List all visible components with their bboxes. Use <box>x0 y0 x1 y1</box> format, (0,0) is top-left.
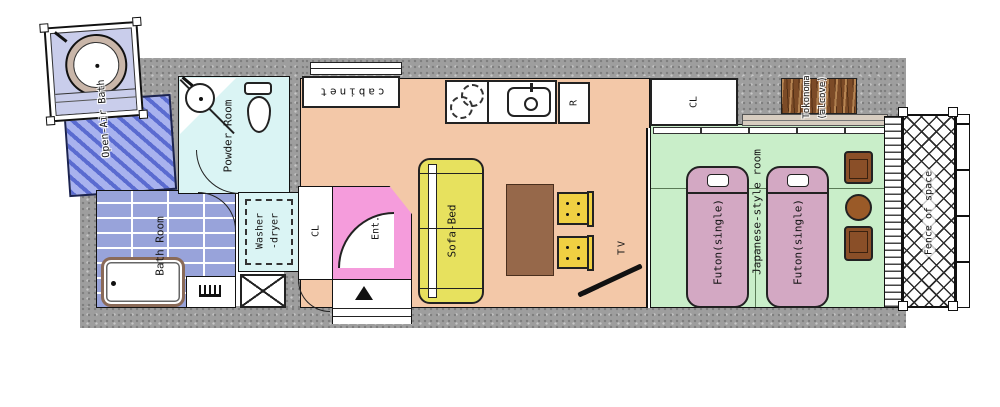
chair <box>557 192 589 225</box>
entrance-label: Ent. <box>371 216 382 240</box>
tokonoma-label-line1: Tokonoma <box>802 75 812 118</box>
frame-post <box>46 116 56 126</box>
sliding-track <box>653 127 885 134</box>
alcove-step <box>742 114 888 126</box>
chair-backrest <box>587 191 594 227</box>
pillow-icon <box>787 174 809 187</box>
sink-drain-icon <box>524 97 538 111</box>
fence-post <box>948 301 958 311</box>
round-table <box>845 194 872 221</box>
wall-bottom <box>80 306 906 328</box>
bathtub <box>101 257 185 307</box>
veranda-label: Fence of space <box>923 169 936 257</box>
window-line <box>311 68 401 69</box>
entrance-triangle-icon <box>355 286 373 300</box>
sofa-bed-label: Sofa-Bed <box>446 205 459 258</box>
bath-room-label: Bath Room <box>154 216 167 276</box>
futon-label-2: Futon(single) <box>792 199 805 285</box>
cabinet-label: cabinet <box>317 86 384 99</box>
fence-post <box>898 301 908 311</box>
stove <box>447 82 489 122</box>
kitchen-sink <box>507 87 551 117</box>
japanese-room-label: Japanese-style room <box>751 149 764 275</box>
sink-basin-icon <box>185 83 215 113</box>
fence-post <box>948 107 958 117</box>
sink-tap-icon <box>530 83 533 92</box>
tv-label: TV <box>617 239 628 255</box>
futon-head-line <box>688 192 747 194</box>
washer-label-line2: -dryer <box>270 213 281 249</box>
pillow-icon <box>707 174 729 187</box>
floor-chair <box>844 151 873 184</box>
chair-backrest <box>587 235 594 271</box>
bath-alcove <box>186 276 236 308</box>
open-air-bath-wing: Open-Air Bath <box>39 14 185 203</box>
refrigerator-label: R <box>569 100 580 106</box>
open-air-bath-room <box>44 21 144 122</box>
frame-post <box>139 110 149 120</box>
futon-label-1: Futon(single) <box>712 199 725 285</box>
bath-bench-line <box>56 96 136 103</box>
sofa-line <box>420 173 482 174</box>
chair <box>557 236 589 269</box>
veranda-railing <box>956 114 970 308</box>
faucet-icon <box>54 31 68 43</box>
bathtub-faucet-icon <box>111 281 116 286</box>
storage-box <box>240 274 286 308</box>
bedroom-closet-label: CL <box>689 96 700 108</box>
grate-icon <box>199 285 221 297</box>
floor-chair <box>844 226 873 261</box>
powder-room-label: Powder Room <box>222 100 235 173</box>
tokonoma-label-line2: (alcove) <box>818 76 828 119</box>
toilet-tank-icon <box>244 82 272 95</box>
hall-closet-label: CL <box>311 225 322 237</box>
open-air-bath-floor <box>50 27 138 116</box>
sink-drain-dot <box>199 97 203 101</box>
kitchen-counter <box>445 80 557 124</box>
futon-head-line <box>768 192 827 194</box>
floor-plan: Open-Air Bath Bath Room Powder Room Wash… <box>0 0 1000 407</box>
frame-post <box>132 17 142 27</box>
wall-top <box>160 58 906 78</box>
living-table <box>506 184 554 276</box>
sofa-stripe <box>428 164 437 298</box>
stove-burner-icon <box>450 96 473 119</box>
frame-post <box>39 23 49 33</box>
window-top <box>310 62 402 75</box>
washer-label-line1: Washer <box>255 213 266 249</box>
window-rail <box>884 116 902 308</box>
fence-post <box>898 107 908 117</box>
sofa-line <box>420 288 482 289</box>
